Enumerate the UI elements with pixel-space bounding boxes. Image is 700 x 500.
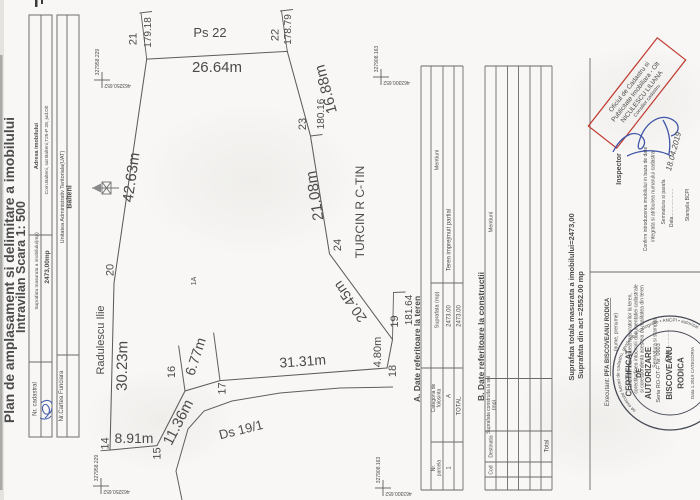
svg-text:Mentiuni: Mentiuni	[488, 212, 494, 233]
svg-text:TURCIN R C-TIN: TURCIN R C-TIN	[353, 166, 367, 259]
svg-text:2473.00: 2473.00	[447, 305, 453, 327]
svg-text:Executant: PFA BISCOVEANU RODI: Executant: PFA BISCOVEANU RODICA	[605, 297, 611, 406]
svg-text:463250.652: 463250.652	[104, 82, 131, 88]
svg-text:Suprafata masurata a imobilulu: Suprafata masurata a imobilului(mp)	[34, 232, 40, 310]
svg-text:2473.00: 2473.00	[457, 305, 463, 327]
svg-text:Stampila BCPI: Stampila BCPI	[685, 189, 691, 222]
svg-text:Semnatura si parafa: Semnatura si parafa	[661, 179, 667, 224]
svg-text:A: A	[447, 394, 453, 398]
svg-text:Nr. cadastral: Nr. cadastral	[33, 382, 39, 416]
svg-text:integrata si atribuirea numar: integrata si atribuirea numarului cadast…	[651, 150, 657, 242]
svg-text:CERTIFICAT: CERTIFICAT	[625, 349, 634, 396]
svg-text:TOTAL: TOTAL	[457, 396, 463, 415]
svg-text:17: 17	[217, 382, 229, 394]
svg-text:Intravilan Scara 1: 500: Intravilan Scara 1: 500	[14, 201, 28, 333]
svg-text:folosinta: folosinta	[437, 388, 443, 407]
svg-text:4.80m: 4.80m	[372, 337, 384, 368]
svg-text:(mp): (mp)	[491, 400, 497, 411]
svg-text:RODICA: RODICA	[677, 357, 686, 389]
svg-text:18: 18	[387, 365, 399, 377]
svg-text:16: 16	[166, 366, 178, 378]
svg-text:19: 19	[389, 315, 401, 327]
svg-text:327958.229: 327958.229	[95, 49, 101, 76]
svg-text:30.23m: 30.23m	[114, 341, 132, 391]
svg-text:2473,00mp: 2473,00mp	[44, 250, 51, 283]
svg-text:Suprafata din act =2552.00 mp: Suprafata din act =2552.00 mp	[576, 271, 585, 379]
svg-text:22: 22	[270, 29, 282, 41]
svg-text:(nume, prenume): (nume, prenume)	[614, 312, 620, 351]
svg-text:180.16: 180.16	[316, 98, 327, 129]
svg-text:178.79: 178.79	[283, 14, 294, 45]
svg-text:A. Date referitoare la teren: A. Date referitoare la teren	[412, 296, 422, 402]
svg-text:Teren imprejmuit partial: Teren imprejmuit partial	[447, 209, 453, 271]
svg-text:Nr.Cartea Funciara: Nr.Cartea Funciara	[59, 370, 65, 421]
svg-text:Total: Total	[545, 440, 551, 453]
svg-text:Inspector: Inspector	[616, 153, 623, 185]
svg-text:15: 15	[152, 447, 164, 459]
svg-text:20: 20	[104, 264, 116, 276]
svg-text:Seria RO-OT-F Nr. 0603: Seria RO-OT-F Nr. 0603	[656, 343, 662, 402]
svg-text:Suprafata (mp): Suprafata (mp)	[435, 291, 441, 328]
svg-text:8.91m: 8.91m	[115, 430, 154, 446]
svg-text:327908.163: 327908.163	[376, 457, 382, 484]
svg-text:21: 21	[128, 33, 140, 45]
svg-text:463250.652: 463250.652	[103, 488, 130, 494]
svg-text:Adresa imobilului: Adresa imobilului	[34, 122, 40, 169]
svg-text:31.31m: 31.31m	[279, 351, 327, 370]
svg-text:Cod: Cod	[488, 465, 494, 474]
svg-text:Com.Balteni, sat Balteni,T25-P: Com.Balteni, sat Balteni,T25-P 28, jud.O…	[44, 105, 50, 194]
svg-text:DE: DE	[636, 368, 643, 378]
svg-text:Suprafata totala masurata a im: Suprafata totala masurata a imobilului=2…	[567, 213, 576, 380]
svg-text:14: 14	[100, 437, 112, 449]
svg-text:23: 23	[297, 118, 309, 130]
svg-text:327958.229: 327958.229	[94, 455, 100, 482]
svg-text:AUTORIZARE: AUTORIZARE	[644, 346, 653, 399]
svg-text:463300.652: 463300.652	[385, 490, 412, 496]
svg-text:327908.163: 327908.163	[374, 46, 380, 73]
svg-text:24: 24	[332, 239, 344, 251]
svg-text:Confirm introducerea imobilulu: Confirm introducerea imobilului in baza …	[643, 147, 649, 252]
svg-text:Balteni: Balteni	[67, 185, 74, 208]
svg-text:Mentiuni: Mentiuni	[435, 150, 441, 171]
svg-text:26.64m: 26.64m	[192, 59, 242, 76]
svg-text:463300.652: 463300.652	[383, 79, 410, 85]
svg-text:parcela: parcela	[437, 460, 443, 477]
svg-text:Unitatea Administrativ Teritor: Unitatea Administrativ Teritoriala(UAT)	[60, 150, 66, 243]
svg-text:Destinatia: Destinatia	[488, 435, 494, 457]
svg-text:B. Date referitoare la constru: B. Date referitoare la constructii	[476, 272, 486, 401]
svg-text:179.18: 179.18	[143, 17, 154, 48]
svg-text:BISCOVEANU: BISCOVEANU	[665, 346, 674, 400]
svg-text:Data 1.2019 CATEGORIA: Data 1.2019 CATEGORIA	[690, 347, 695, 399]
svg-text:Radulescu Ilie: Radulescu Ilie	[95, 305, 107, 374]
svg-text:Data....................: Data....................	[669, 189, 675, 227]
svg-text:Ps 22: Ps 22	[193, 25, 226, 40]
svg-text:1A: 1A	[191, 276, 198, 285]
